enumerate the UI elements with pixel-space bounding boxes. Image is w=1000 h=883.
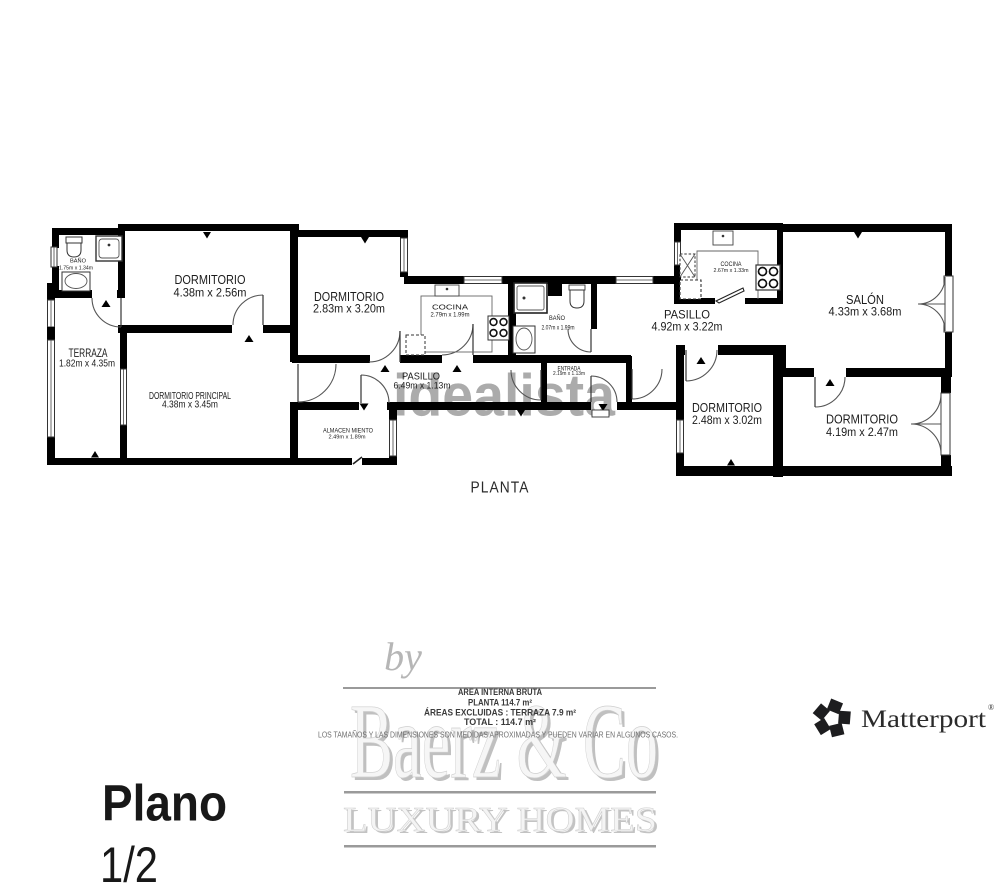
svg-text:Plano: Plano (102, 775, 227, 832)
svg-text:2.48m x 3.02m: 2.48m x 3.02m (692, 413, 762, 427)
svg-text:1.75m x 1.34m: 1.75m x 1.34m (59, 266, 93, 272)
svg-text:LOS TAMAÑOS Y LAS DIMENSIONES: LOS TAMAÑOS Y LAS DIMENSIONES SON MEDIDA… (318, 731, 678, 740)
svg-text:1/2: 1/2 (100, 837, 158, 883)
svg-text:COCINA: COCINA (721, 261, 743, 268)
svg-text:PASILLO: PASILLO (664, 310, 710, 322)
svg-text:®: ® (988, 703, 994, 712)
svg-text:4.33m x 3.68m: 4.33m x 3.68m (829, 305, 902, 319)
svg-text:4.38m x 2.56m: 4.38m x 2.56m (174, 286, 247, 300)
svg-text:6.49m x 1.13m: 6.49m x 1.13m (394, 381, 451, 392)
svg-text:2.79m x 1.99m: 2.79m x 1.99m (431, 313, 470, 319)
svg-text:1.82m x 4.35m: 1.82m x 4.35m (59, 358, 115, 370)
svg-text:ÁREAS EXCLUIDAS : TERRAZA 7.: ÁREAS EXCLUIDAS : TERRAZA 7.9 m² (424, 708, 576, 718)
svg-text:4.19m x 2.47m: 4.19m x 2.47m (826, 425, 898, 439)
svg-text:Matterport: Matterport (861, 706, 986, 733)
svg-text:COCINA: COCINA (432, 305, 468, 312)
svg-text:by: by (384, 634, 422, 679)
svg-text:2.07m x 1.99m: 2.07m x 1.99m (542, 326, 575, 332)
svg-text:LUXURY HOMES: LUXURY HOMES (343, 800, 657, 839)
svg-text:PLANTA: PLANTA (471, 480, 530, 497)
svg-text:2.49m x 1.89m: 2.49m x 1.89m (329, 434, 366, 440)
svg-text:2.19m x 1.13m: 2.19m x 1.13m (553, 371, 585, 377)
svg-text:4.38m x 3.45m: 4.38m x 3.45m (162, 400, 218, 411)
svg-text:BAÑO: BAÑO (549, 313, 565, 322)
svg-text:2.83m x 3.20m: 2.83m x 3.20m (313, 302, 385, 316)
svg-text:PLANTA 114.7 m²: PLANTA 114.7 m² (468, 698, 532, 708)
svg-text:2.67m x 1.33m: 2.67m x 1.33m (714, 268, 749, 274)
svg-text:TOTAL : 114.7 m²: TOTAL : 114.7 m² (464, 717, 536, 727)
svg-text:AREA INTERNA BRUTA: AREA INTERNA BRUTA (458, 687, 542, 697)
svg-text:4.92m x 3.22m: 4.92m x 3.22m (652, 322, 723, 334)
svg-text:BAÑO: BAÑO (70, 258, 87, 265)
